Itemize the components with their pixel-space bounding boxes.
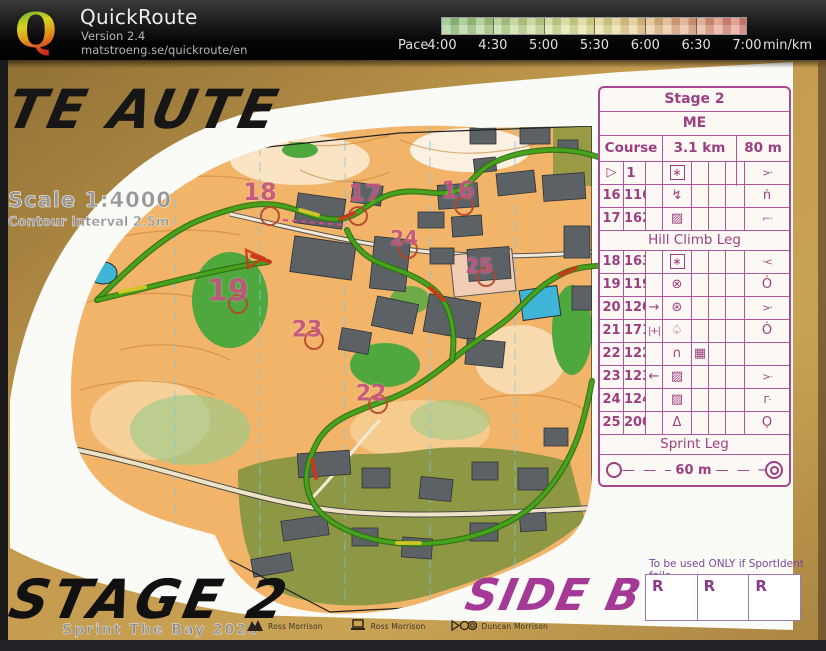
- symbol-cell: Ọ: [745, 412, 789, 434]
- finish-row: — — —60 m— — →: [600, 455, 789, 485]
- map-control-number-25: 25: [465, 254, 493, 278]
- empty-cell: [709, 162, 726, 184]
- sponsor-logos: Ross MorrisonRoss MorrisonDuncan Morriso…: [246, 616, 548, 636]
- circle-dot-top-symbol: Ȯ: [762, 277, 772, 292]
- pace-tick-5:30: 5:30: [580, 38, 609, 53]
- control-row: 18163∗·<: [600, 251, 789, 274]
- pace-tick-7:00: 7:00: [732, 38, 761, 53]
- empty-cell: [646, 412, 663, 434]
- map-control-number-19: 19: [207, 274, 249, 309]
- empty-cell: [692, 320, 709, 342]
- control-row: 22122∩▦: [600, 343, 789, 366]
- symbol-cell: ▨: [663, 389, 692, 411]
- control-number: 17: [600, 208, 624, 230]
- empty-cell: [726, 251, 745, 273]
- pace-gradient-bar: [441, 17, 747, 35]
- header-shadow: [0, 60, 826, 68]
- pace-bar-tick: [493, 18, 494, 34]
- arrow-right-symbol: →: [649, 300, 660, 315]
- empty-cell: [709, 343, 726, 365]
- corner-dot-symbol: Γ·: [764, 395, 771, 406]
- control-code: 124: [624, 389, 646, 411]
- control-code: 171: [624, 320, 646, 342]
- control-code: 122: [624, 343, 646, 365]
- pace-unit-label: min/km: [763, 38, 812, 53]
- empty-cell: [709, 389, 726, 411]
- knoll-symbol: ∩: [672, 346, 682, 361]
- symbol-cell: ⌐·: [745, 208, 789, 230]
- control-code: 120: [624, 297, 646, 319]
- symbol-cell: ↯: [663, 185, 692, 207]
- empty-cell: [709, 274, 726, 296]
- symbol-cell: ·<: [745, 251, 789, 273]
- pace-tick-6:00: 6:00: [631, 38, 660, 53]
- symbol-cell: ⊗: [663, 274, 692, 296]
- bottom-edge: [0, 640, 826, 651]
- symbol-cell: →: [646, 297, 663, 319]
- app-url: matstroeng.se/quickroute/en: [81, 43, 247, 57]
- header-bar: Q QuickRoute Version 2.4 matstroeng.se/q…: [0, 0, 826, 60]
- map-control-number-24: 24: [390, 226, 418, 250]
- symbol-cell: ṅ: [745, 185, 789, 207]
- angle-right-dot-symbol: >·: [762, 303, 772, 314]
- empty-cell: [692, 274, 709, 296]
- map-control-number-22: 22: [356, 382, 387, 407]
- control-number: 25: [600, 412, 624, 434]
- empty-cell: [646, 343, 663, 365]
- empty-cell: [692, 412, 709, 434]
- empty-cell: [726, 412, 745, 434]
- control-row: 21171|+|♤Ȯ: [600, 320, 789, 343]
- app-title: QuickRoute: [80, 5, 198, 29]
- control-row: 16116↯ṅ: [600, 185, 789, 208]
- symbol-cell: ♤: [663, 320, 692, 342]
- sponsor-name: Duncan Morrison: [481, 622, 548, 631]
- control-number: 20: [600, 297, 624, 319]
- control-code: [624, 162, 646, 184]
- pace-tick-4:30: 4:30: [478, 38, 507, 53]
- empty-cell: [646, 389, 663, 411]
- spring-symbol: ♤: [671, 323, 683, 338]
- pace-bar-tick: [696, 18, 697, 34]
- symbol-cell: Ȯ: [745, 274, 789, 296]
- empty-cell: [745, 343, 789, 365]
- empty-cell: [726, 208, 745, 230]
- pace-label: Pace: [398, 38, 428, 53]
- building-symbol: ▨: [671, 211, 683, 226]
- finish-distance: 60 m: [671, 463, 715, 478]
- empty-cell: [646, 162, 663, 184]
- taped-route-dashes: — — —: [622, 463, 671, 478]
- building-symbol: ▨: [671, 392, 683, 407]
- sponsor-logo: Ross Morrison: [246, 617, 323, 636]
- empty-cell: [692, 389, 709, 411]
- taped-route-arrow: — — →: [716, 463, 765, 478]
- control-number: 19: [600, 274, 624, 296]
- empty-cell: [726, 274, 745, 296]
- control-row: 19119⊗Ȯ: [600, 274, 789, 297]
- empty-cell: [726, 162, 745, 184]
- empty-cell: [692, 251, 709, 273]
- flowerbox-symbol: ∗: [670, 165, 685, 180]
- empty-cell: [692, 185, 709, 207]
- pace-tick-6:30: 6:30: [682, 38, 711, 53]
- angle-right-dot-symbol: >·: [762, 372, 772, 383]
- app-version: Version 2.4: [81, 29, 145, 43]
- stairs-symbol: ↯: [672, 188, 683, 203]
- quickroute-window: Q QuickRoute Version 2.4 matstroeng.se/q…: [0, 0, 826, 651]
- control-number: 21: [600, 320, 624, 342]
- video-icon: [451, 617, 477, 636]
- symbol-cell: ▦: [692, 343, 709, 365]
- side-label: SIDE B: [461, 570, 647, 620]
- symbol-cell: ←: [646, 366, 663, 388]
- leg-banner: Sprint Leg: [600, 435, 789, 455]
- circle-dot-top-symbol: Ȯ: [762, 323, 772, 338]
- statue-symbol: Δ: [673, 415, 682, 430]
- symbol-cell: ▷: [600, 162, 624, 184]
- event-name: Sprint The Bay 2020: [62, 622, 260, 638]
- control-number: 18: [600, 251, 624, 273]
- control-row: 17162▨⌐·: [600, 208, 789, 231]
- empty-cell: [709, 251, 726, 273]
- sponsor-name: Ross Morrison: [371, 622, 426, 631]
- empty-cell: [646, 251, 663, 273]
- symbol-cell: ∩: [663, 343, 692, 365]
- symbol-cell: ⊛: [663, 297, 692, 319]
- sheet-course-row: Course 1 3.1 km 80 m: [600, 136, 789, 162]
- control-row: 25200ΔỌ: [600, 412, 789, 435]
- control-code: 162: [624, 208, 646, 230]
- symbol-cell: ▨: [663, 208, 692, 230]
- empty-cell: [726, 297, 745, 319]
- empty-cell: [709, 320, 726, 342]
- map-title: TE AUTE: [2, 78, 286, 141]
- control-row: 20120→⊛>·: [600, 297, 789, 320]
- laptop-icon: [349, 617, 367, 636]
- symbol-cell: ∗: [663, 251, 692, 273]
- symbol-cell: Γ·: [745, 389, 789, 411]
- control-number: 22: [600, 343, 624, 365]
- thicket-symbol: ⊛: [672, 300, 683, 315]
- sponsor-logo: Duncan Morrison: [451, 617, 548, 636]
- start-symbol: ▷: [607, 165, 617, 180]
- corner-left-dot-symbol: ⌐·: [762, 214, 772, 225]
- leg-banner: Hill Climb Leg: [600, 231, 789, 251]
- control-code: 200: [624, 412, 646, 434]
- control-code: 163: [624, 251, 646, 273]
- pace-bar-tick: [594, 18, 595, 34]
- map-control-number-18: 18: [243, 178, 276, 206]
- control-number: 23: [600, 366, 624, 388]
- symbol-cell: ∗: [663, 162, 692, 184]
- left-edge: [0, 60, 8, 651]
- quickroute-logo-icon: Q: [12, 3, 66, 59]
- sponsor-logo: Ross Morrison: [349, 617, 426, 636]
- empty-cell: [646, 208, 663, 230]
- symbol-cell: >·: [745, 297, 789, 319]
- sheet-title: Stage 2: [600, 88, 789, 112]
- empty-cell: [709, 366, 726, 388]
- empty-cell: [709, 208, 726, 230]
- map-control-number-16: 16: [441, 176, 474, 204]
- angle-right-dot-symbol: >·: [762, 168, 772, 179]
- empty-cell: [726, 185, 745, 207]
- mountain-icon: [246, 617, 264, 636]
- dot-angle-left-symbol: ·<: [762, 257, 772, 268]
- empty-cell: [692, 366, 709, 388]
- pace-tick-5:00: 5:00: [529, 38, 558, 53]
- pace-bar-tick: [645, 18, 646, 34]
- empty-cell: [692, 162, 709, 184]
- flowerbox-symbol: ∗: [670, 254, 685, 269]
- arrow-left-symbol: ←: [649, 369, 660, 384]
- start-row: ▷∗>·: [600, 162, 789, 185]
- symbol-cell: >·: [745, 162, 789, 184]
- symbol-cell: Ȯ: [745, 320, 789, 342]
- sponsor-name: Ross Morrison: [268, 622, 323, 631]
- empty-cell: [692, 208, 709, 230]
- control-number: 16: [600, 185, 624, 207]
- control-row: 24124▨Γ·: [600, 389, 789, 412]
- finish-double-circle-icon: [765, 461, 783, 479]
- between-symbol: |+|: [648, 326, 660, 337]
- si-backup-cell: R: [749, 575, 800, 620]
- map-contour: Contour Interval 2.5m: [8, 215, 169, 230]
- empty-cell: [726, 389, 745, 411]
- paved-symbol: ▦: [694, 346, 706, 361]
- sheet-class: ME: [600, 112, 789, 136]
- empty-cell: [692, 297, 709, 319]
- empty-cell: [726, 320, 745, 342]
- si-backup-box: RRR: [645, 574, 801, 621]
- building-symbol: ▨: [671, 369, 683, 384]
- cross-circle-symbol: ⊗: [672, 277, 683, 292]
- symbol-cell: Δ: [663, 412, 692, 434]
- pace-bar-tick: [544, 18, 545, 34]
- empty-cell: [709, 412, 726, 434]
- symbol-cell: ▨: [663, 366, 692, 388]
- finish-start-circle-icon: [606, 462, 622, 478]
- empty-cell: [726, 366, 745, 388]
- empty-cell: [726, 343, 745, 365]
- si-backup-cell: R: [698, 575, 750, 620]
- control-row: 23123←▨>·: [600, 366, 789, 389]
- symbol-cell: >·: [745, 366, 789, 388]
- map-scale: Scale 1:4000: [8, 188, 172, 212]
- pace-tick-4:00: 4:00: [427, 38, 456, 53]
- map-control-number-17: 17: [348, 179, 381, 207]
- control-number: 24: [600, 389, 624, 411]
- svg-text:Q: Q: [15, 3, 57, 59]
- circle-dot-bottom-symbol: Ọ: [762, 415, 772, 430]
- control-code: 123: [624, 366, 646, 388]
- empty-cell: [646, 185, 663, 207]
- symbol-cell: |+|: [646, 320, 663, 342]
- si-backup-cell: R: [646, 575, 698, 620]
- n-dot-symbol: ṅ: [763, 188, 771, 203]
- empty-cell: [646, 274, 663, 296]
- empty-cell: [709, 185, 726, 207]
- control-description-sheet: Stage 2 ME Course 1 3.1 km 80 m ▷∗>·1611…: [598, 86, 791, 487]
- control-code: 119: [624, 274, 646, 296]
- control-code: 116: [624, 185, 646, 207]
- right-edge: [818, 60, 826, 651]
- empty-cell: [709, 297, 726, 319]
- map-control-number-23: 23: [292, 318, 323, 343]
